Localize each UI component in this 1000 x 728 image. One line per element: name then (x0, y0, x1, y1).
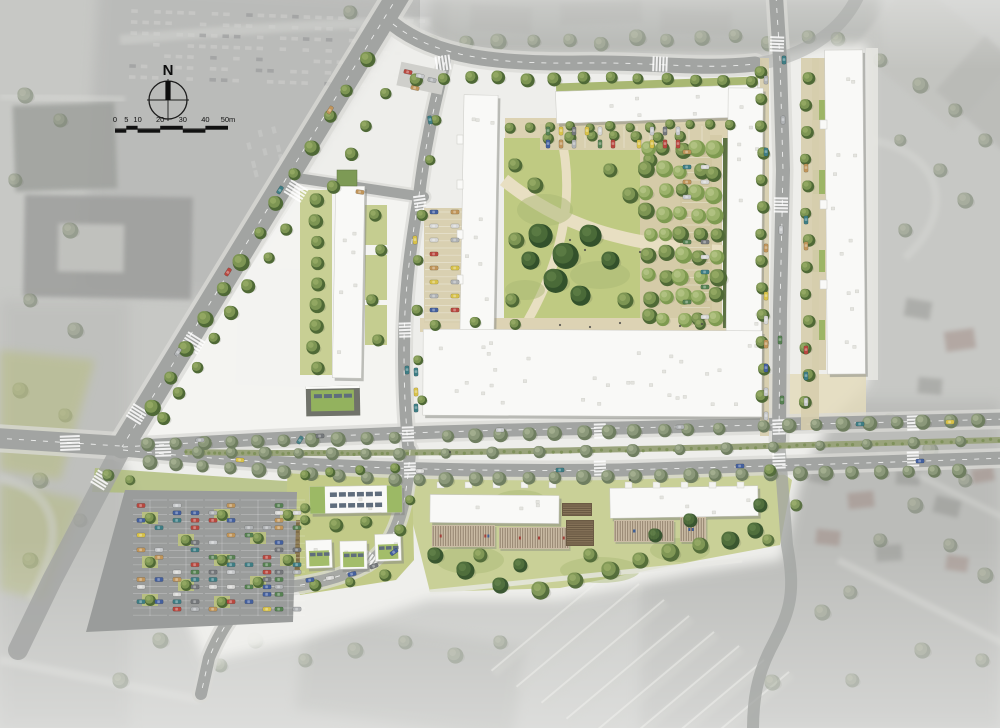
scale-label: 50m (221, 115, 236, 124)
scale-label: 30 (179, 115, 187, 124)
north-label: N (163, 62, 174, 79)
scale-label: 40 (201, 115, 209, 124)
north-needle (165, 81, 170, 100)
scale-label: 10 (133, 115, 141, 124)
masterplan-rendering: N 051020304050m (0, 0, 1000, 728)
site-plan-canvas: N 051020304050m (0, 0, 1000, 728)
scale-label: 0 (113, 115, 117, 124)
scale-label: 5 (124, 115, 128, 124)
scale-label: 20 (156, 115, 164, 124)
